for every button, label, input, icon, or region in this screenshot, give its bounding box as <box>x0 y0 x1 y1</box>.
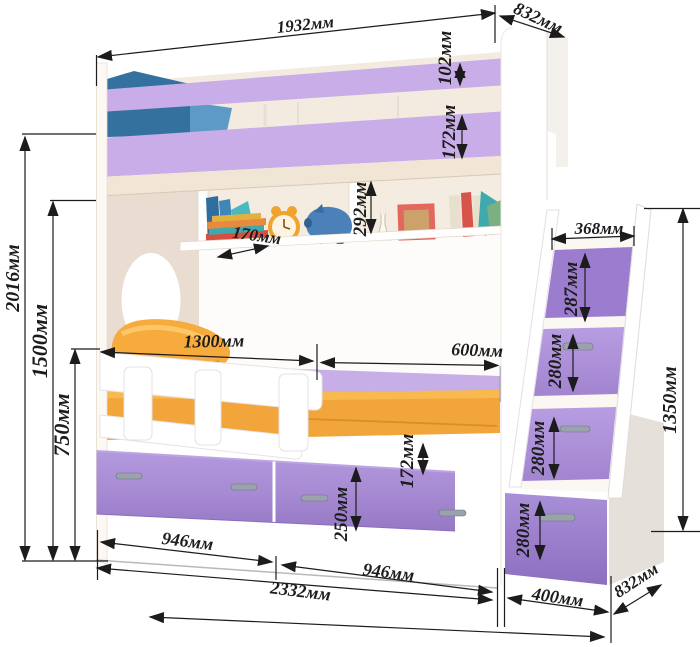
svg-text:172мм: 172мм <box>397 434 418 489</box>
svg-text:1300мм: 1300мм <box>183 330 244 351</box>
svg-text:280мм: 280мм <box>545 334 566 390</box>
svg-text:172мм: 172мм <box>439 105 460 160</box>
svg-text:280мм: 280мм <box>513 503 534 559</box>
svg-text:102мм: 102мм <box>435 31 456 86</box>
svg-text:250мм: 250мм <box>331 487 352 543</box>
svg-text:368мм: 368мм <box>574 219 624 238</box>
svg-text:750мм: 750мм <box>49 393 74 456</box>
svg-text:287мм: 287мм <box>561 262 582 318</box>
svg-text:2016мм: 2016мм <box>2 244 24 313</box>
svg-text:600мм: 600мм <box>451 339 503 361</box>
svg-text:280мм: 280мм <box>528 421 549 477</box>
svg-text:1500мм: 1500мм <box>27 304 52 378</box>
svg-text:292мм: 292мм <box>350 182 371 238</box>
svg-text:1350мм: 1350мм <box>659 366 681 434</box>
